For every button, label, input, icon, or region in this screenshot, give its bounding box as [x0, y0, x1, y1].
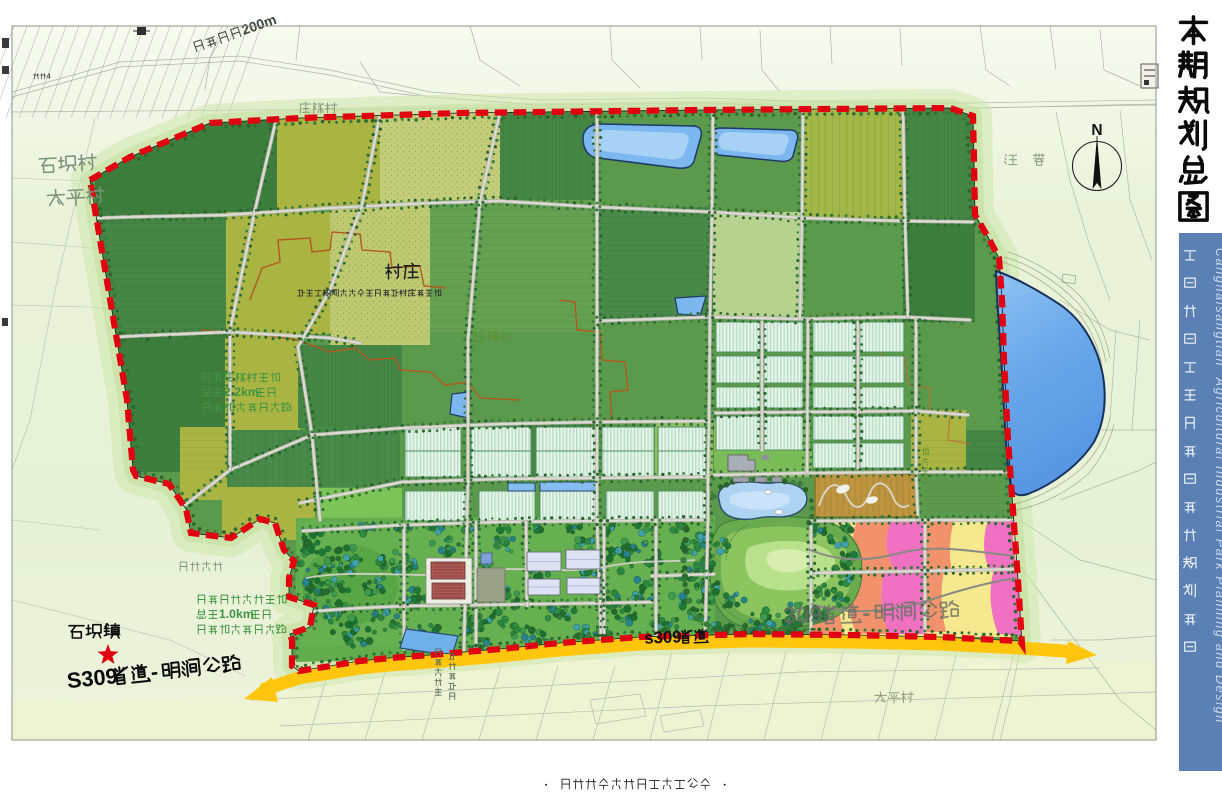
svg-text:“Canghaisangtian” Agricultural: “Canghaisangtian” Agricultural Industria… [1213, 242, 1222, 724]
svg-text:2.2km: 2.2km [224, 385, 259, 399]
svg-text:S309: S309 [66, 663, 119, 693]
svg-text:N: N [1091, 122, 1102, 139]
svg-text:1.0km: 1.0km [219, 607, 254, 621]
svg-text:s309: s309 [644, 627, 682, 647]
svg-text:-: - [862, 600, 871, 626]
svg-text:309: 309 [783, 601, 823, 628]
